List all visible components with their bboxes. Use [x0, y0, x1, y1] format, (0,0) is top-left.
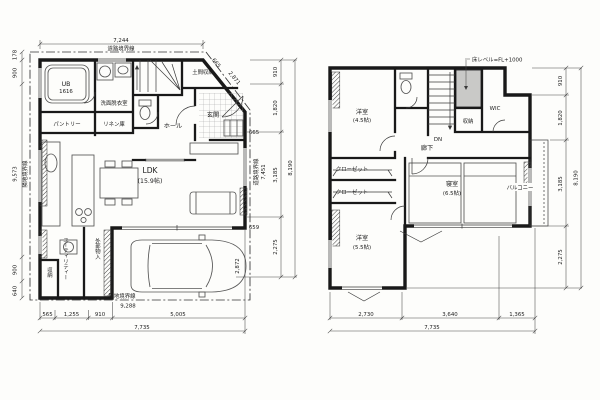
label-site-boundary-bottom: 隣地境界線	[109, 292, 137, 300]
dim-7244: 7,244	[113, 38, 129, 44]
room-label-bedroom1: 洋室	[356, 108, 368, 116]
room-label-doma-storage: 土間収納	[192, 68, 214, 76]
dim-565: 565	[42, 312, 52, 318]
dining-table-and-chairs	[100, 161, 138, 205]
dim-3185-right1: 3,185	[273, 167, 279, 182]
dim-665-diagonal: 665	[210, 57, 221, 69]
entrance-tile-floor	[199, 93, 243, 138]
shutter-box-ldk	[240, 188, 247, 215]
label-road-boundary-right: 道路境界線	[252, 158, 260, 186]
hatched-wall-ext-storage	[104, 230, 111, 296]
room-label-entrance: 玄関	[207, 111, 219, 119]
room-label-balcony: バルコニー	[507, 185, 534, 192]
plan1-left-dimensions: 178 900 9,573 隣地境界線 900 640	[13, 49, 30, 300]
room-label-ldk-size: (15.9帖)	[138, 177, 163, 185]
room-label-exterior-storage: 外部物入	[94, 237, 101, 260]
dim-9288: 9,288	[120, 304, 136, 310]
dim-640: 640	[13, 285, 19, 296]
plan2-right-dimensions: 910 1,820 3,185 2,275 8,190	[407, 66, 583, 290]
dim-5005: 5,005	[170, 312, 185, 318]
room-label-master: 寝室	[446, 180, 458, 188]
room-label-ldk: LDK	[142, 166, 158, 175]
room-label-wic: WIC	[490, 106, 501, 112]
room-label-hall: ホール	[164, 123, 183, 130]
dim-3640: 3,640	[442, 312, 458, 318]
dim-900-top: 900	[13, 67, 19, 78]
dim-1255: 1,255	[64, 312, 79, 318]
label-site-boundary-left: 隣地境界線	[21, 160, 29, 188]
room-label-closet2: クローゼット	[336, 188, 368, 196]
plan1-stairs	[135, 60, 180, 92]
floor-plan-drawing: UB 1616 洗面脱衣室 パントリー リネン庫 土間収納 玄関 ホール LDK…	[0, 0, 600, 400]
room-label-storage1f: 収納	[46, 267, 53, 279]
room-label-linen: リネン庫	[103, 120, 125, 128]
hatched-wall-bedroom1	[332, 72, 340, 108]
dim-1365: 1,365	[509, 312, 524, 318]
plan1-top-dimension: 7,244 道路境界線	[38, 38, 205, 53]
stair-up-arrow	[135, 65, 139, 69]
toilet-fixture	[139, 100, 151, 120]
room-label-bedroom2-size: (5.5帖)	[353, 243, 371, 251]
plan1-right-dimensions: 665 2,871 910 1,820 3,185 2,275 8,190 66…	[210, 57, 297, 279]
plan1-bottom-dimensions: 隣地境界線 9,288 565 1,255 910 5,005 7,735	[38, 230, 247, 334]
dim-1820-right2: 1,820	[558, 110, 564, 126]
stair-down-arrow	[448, 126, 452, 130]
sofa	[190, 192, 236, 214]
dim-178: 178	[13, 49, 19, 60]
dim-2872-car: 2,872	[235, 258, 241, 273]
parked-car	[131, 235, 246, 297]
plan2-outer-wall	[330, 68, 530, 288]
dim-8190-right2: 8,190	[574, 170, 580, 186]
kitchen-counter	[42, 142, 94, 226]
plan2-second-floor: 床レベル=FL+1000 洋室 (4.5帖) WIC 収納 DN 廊下 クローゼ…	[327, 56, 583, 335]
dim-7451: 7,451	[261, 164, 267, 179]
beds	[409, 163, 516, 223]
room-label-corridor: 廊下	[421, 144, 433, 152]
room-label-master-size: (6.5帖)	[443, 189, 461, 197]
toilet-fixture-2f	[400, 73, 412, 94]
dim-2730: 2,730	[358, 312, 374, 318]
room-label-bedroom2: 洋室	[356, 234, 368, 242]
room-label-storage2f: 収納	[463, 117, 474, 125]
room-label-closet1: クローゼット	[336, 165, 368, 173]
tv-board	[190, 143, 238, 154]
room-label-pantry: パントリー	[53, 121, 80, 128]
dim-2275-right1: 2,275	[273, 239, 279, 254]
plan2-bottom-dimensions: 2,730 3,640 1,365 7,735	[328, 228, 537, 334]
room-label-utility: ユーティリティー	[62, 237, 69, 280]
label-floor-level: 床レベル=FL+1000	[472, 56, 523, 64]
dim-7735-plan1: 7,735	[134, 325, 149, 331]
label-dn: DN	[434, 137, 442, 143]
dim-659: 659	[249, 225, 260, 231]
dim-3185-right2: 3,185	[558, 176, 564, 191]
plan2-stairs	[428, 72, 455, 130]
dim-665-wall: 665	[249, 130, 259, 136]
washer-and-basin	[97, 63, 131, 80]
dim-1820-right1: 1,820	[273, 100, 279, 116]
dim-8190-right1: 8,190	[288, 160, 294, 176]
dim-910-bottom1: 910	[95, 312, 106, 318]
dim-900-bottom: 900	[13, 264, 19, 275]
dim-910-right2: 910	[558, 75, 564, 86]
floor-plan-canvas: UB 1616 洗面脱衣室 パントリー リネン庫 土間収納 玄関 ホール LDK…	[0, 0, 600, 400]
hatched-wall-bedroom2	[332, 210, 340, 246]
room-label-ub: UB	[62, 81, 71, 88]
label-road-boundary-top: 道路境界線	[108, 45, 136, 53]
dim-2275-right2: 2,275	[558, 249, 564, 264]
plan1-first-floor: UB 1616 洗面脱衣室 パントリー リネン庫 土間収納 玄関 ホール LDK…	[13, 38, 298, 334]
dim-7735-plan2: 7,735	[424, 325, 439, 331]
dim-2871: 2,871	[227, 70, 241, 86]
dim-910-right1: 910	[273, 66, 279, 77]
room-label-bedroom1-size: (4.5帖)	[353, 116, 371, 124]
room-label-ub-size: 1616	[59, 89, 73, 95]
room-label-washroom: 洗面脱衣室	[101, 99, 129, 107]
raised-floor-area	[456, 70, 481, 107]
dim-9573: 9,573	[13, 166, 19, 181]
